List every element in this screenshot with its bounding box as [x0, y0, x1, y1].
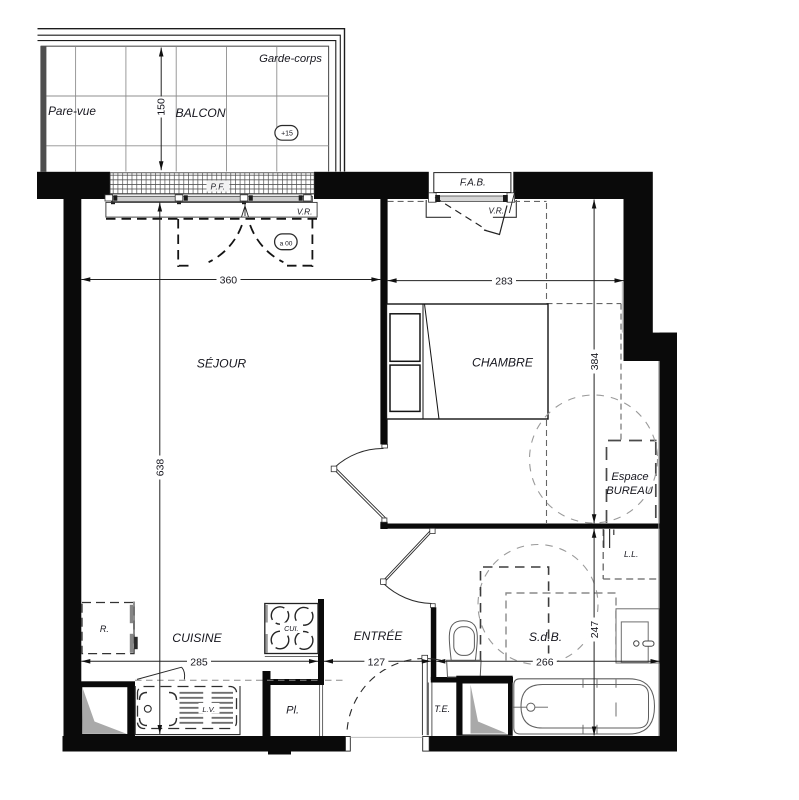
svg-text:T.E.: T.E. [434, 704, 450, 714]
svg-text:638: 638 [155, 459, 167, 477]
svg-text:S.d.B.: S.d.B. [529, 630, 562, 644]
svg-text:CHAMBRE: CHAMBRE [472, 356, 534, 370]
svg-text:a 00: a 00 [280, 240, 293, 247]
svg-text:247: 247 [589, 621, 601, 639]
svg-text:V.R.: V.R. [489, 205, 505, 215]
svg-text:+15: +15 [281, 131, 293, 138]
svg-text:R.: R. [100, 624, 109, 634]
svg-text:283: 283 [495, 276, 513, 288]
svg-text:360: 360 [220, 275, 238, 287]
svg-text:ENTRÉE: ENTRÉE [354, 628, 404, 643]
svg-text:150: 150 [156, 98, 168, 116]
svg-text:127: 127 [368, 657, 386, 669]
svg-text:L.L.: L.L. [624, 549, 638, 559]
svg-text:BALCON: BALCON [175, 106, 225, 120]
svg-text:266: 266 [536, 657, 554, 669]
svg-text:CUISINE: CUISINE [172, 631, 222, 645]
svg-text:P.F.: P.F. [211, 183, 226, 192]
svg-text:Espace: Espace [611, 471, 648, 483]
svg-text:F.A.B.: F.A.B. [460, 178, 486, 189]
svg-text:BUREAU: BUREAU [606, 485, 654, 497]
svg-text:Pl.: Pl. [286, 705, 299, 717]
svg-text:CUI.: CUI. [284, 624, 298, 633]
svg-text:SÉJOUR: SÉJOUR [197, 356, 247, 371]
svg-text:Garde-corps: Garde-corps [259, 53, 322, 65]
svg-text:384: 384 [589, 353, 601, 371]
svg-text:L.V.: L.V. [202, 705, 215, 714]
svg-text:Pare-vue: Pare-vue [48, 104, 96, 118]
svg-text:285: 285 [190, 657, 208, 669]
svg-text:V.R.: V.R. [297, 206, 313, 216]
